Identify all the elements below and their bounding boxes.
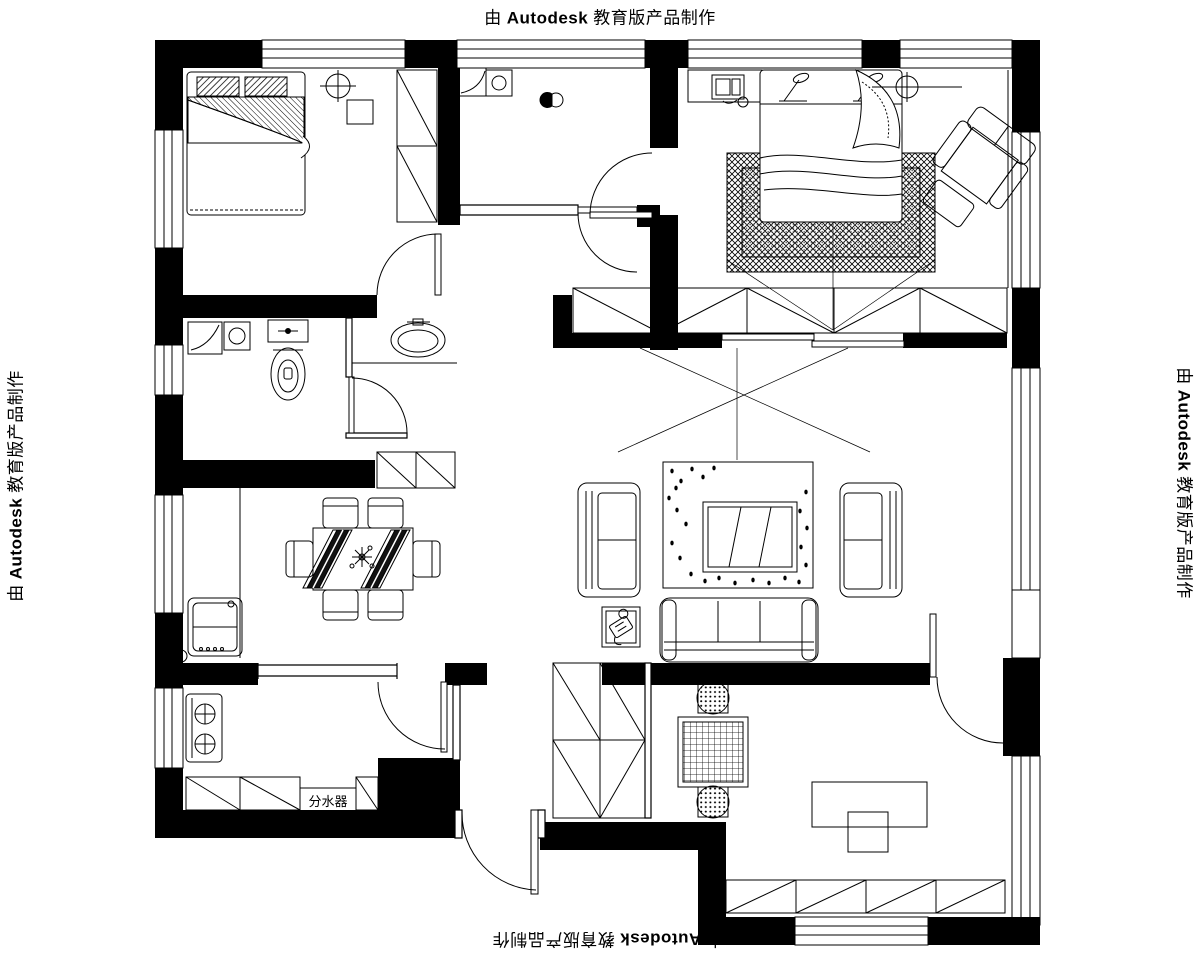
window-right-balcony-band	[1012, 590, 1040, 658]
sliding-door-icon	[722, 334, 904, 347]
corridor-cabinet-bank	[553, 663, 645, 818]
kitchen-pass-through	[258, 663, 397, 679]
wardrobe-icon	[397, 70, 437, 222]
study-room	[678, 682, 1005, 913]
master-wardrobe-row	[573, 288, 1007, 333]
dining-chair-icon	[368, 590, 403, 620]
bed-single-icon	[187, 72, 310, 215]
washbasin-icon	[352, 319, 457, 363]
floor-drain-icon	[540, 93, 563, 108]
pillow-icon	[245, 77, 287, 96]
window-right-study	[1012, 756, 1040, 925]
door-bathroom	[349, 377, 407, 433]
window-left-kitchen	[155, 688, 183, 768]
toilet-icon	[268, 320, 308, 400]
dining-chair-icon	[286, 541, 313, 577]
window-bottom-study	[795, 917, 928, 945]
gas-stove-icon	[186, 694, 222, 762]
kitchen-sink-icon	[188, 598, 242, 656]
dining-room	[175, 472, 440, 662]
window-top-right	[900, 40, 1012, 68]
pillow-icon	[197, 77, 239, 96]
armchair-icon	[840, 483, 902, 597]
door-entrance	[462, 810, 538, 894]
window-left-bedroom1	[155, 130, 183, 248]
centerpiece-flower-icon	[350, 546, 374, 568]
kitchen: 分水器	[186, 694, 378, 812]
bath-cabinet-icon	[377, 452, 455, 488]
tea-table-icon	[678, 717, 748, 787]
window-top-laundry	[457, 40, 645, 68]
bed-double-icon	[760, 70, 902, 222]
table-runner	[303, 530, 410, 588]
study-cabinet-row	[726, 880, 1005, 913]
telephone-icon	[602, 608, 640, 647]
dining-chair-icon	[323, 590, 358, 620]
washing-machine-icon	[458, 68, 512, 96]
door-kitchen	[378, 682, 447, 752]
window-top-master	[688, 40, 862, 68]
window-left-bathroom	[155, 345, 183, 395]
sofa-icon	[660, 598, 818, 662]
coffee-table-icon	[703, 502, 797, 572]
stool-icon	[697, 682, 729, 714]
dining-table-icon	[286, 498, 440, 620]
shower-unit-icon	[188, 322, 250, 354]
nightstand-icon	[347, 100, 373, 124]
dining-chair-icon	[323, 498, 358, 528]
bedroom1	[187, 70, 437, 222]
armchair-icon	[578, 483, 640, 597]
tv-shelf-icon	[688, 70, 762, 107]
dining-chair-icon	[368, 498, 403, 528]
laundry-hall	[458, 68, 563, 108]
manifold-label: 分水器	[308, 794, 347, 809]
door-bedroom1	[377, 234, 441, 295]
living-room	[578, 462, 902, 662]
window-top-bedroom1	[262, 40, 405, 68]
stool-icon	[697, 786, 729, 818]
kitchen-counter-cabinets	[186, 777, 378, 810]
floor-plan-drawing: 分水器	[0, 0, 1200, 960]
water-manifold-box: 分水器	[300, 788, 356, 812]
window-left-dining	[155, 495, 183, 613]
window-right-living	[1012, 368, 1040, 590]
phone-table-icon	[602, 607, 640, 647]
floor-plan-page: { "watermark": { "prefix": "由", "brand":…	[0, 0, 1200, 960]
desk-icon	[812, 782, 927, 852]
dining-chair-icon	[413, 541, 440, 577]
ceiling-lamp-icon	[320, 70, 356, 102]
window-right-master	[1012, 132, 1040, 288]
door-study	[930, 614, 1003, 743]
